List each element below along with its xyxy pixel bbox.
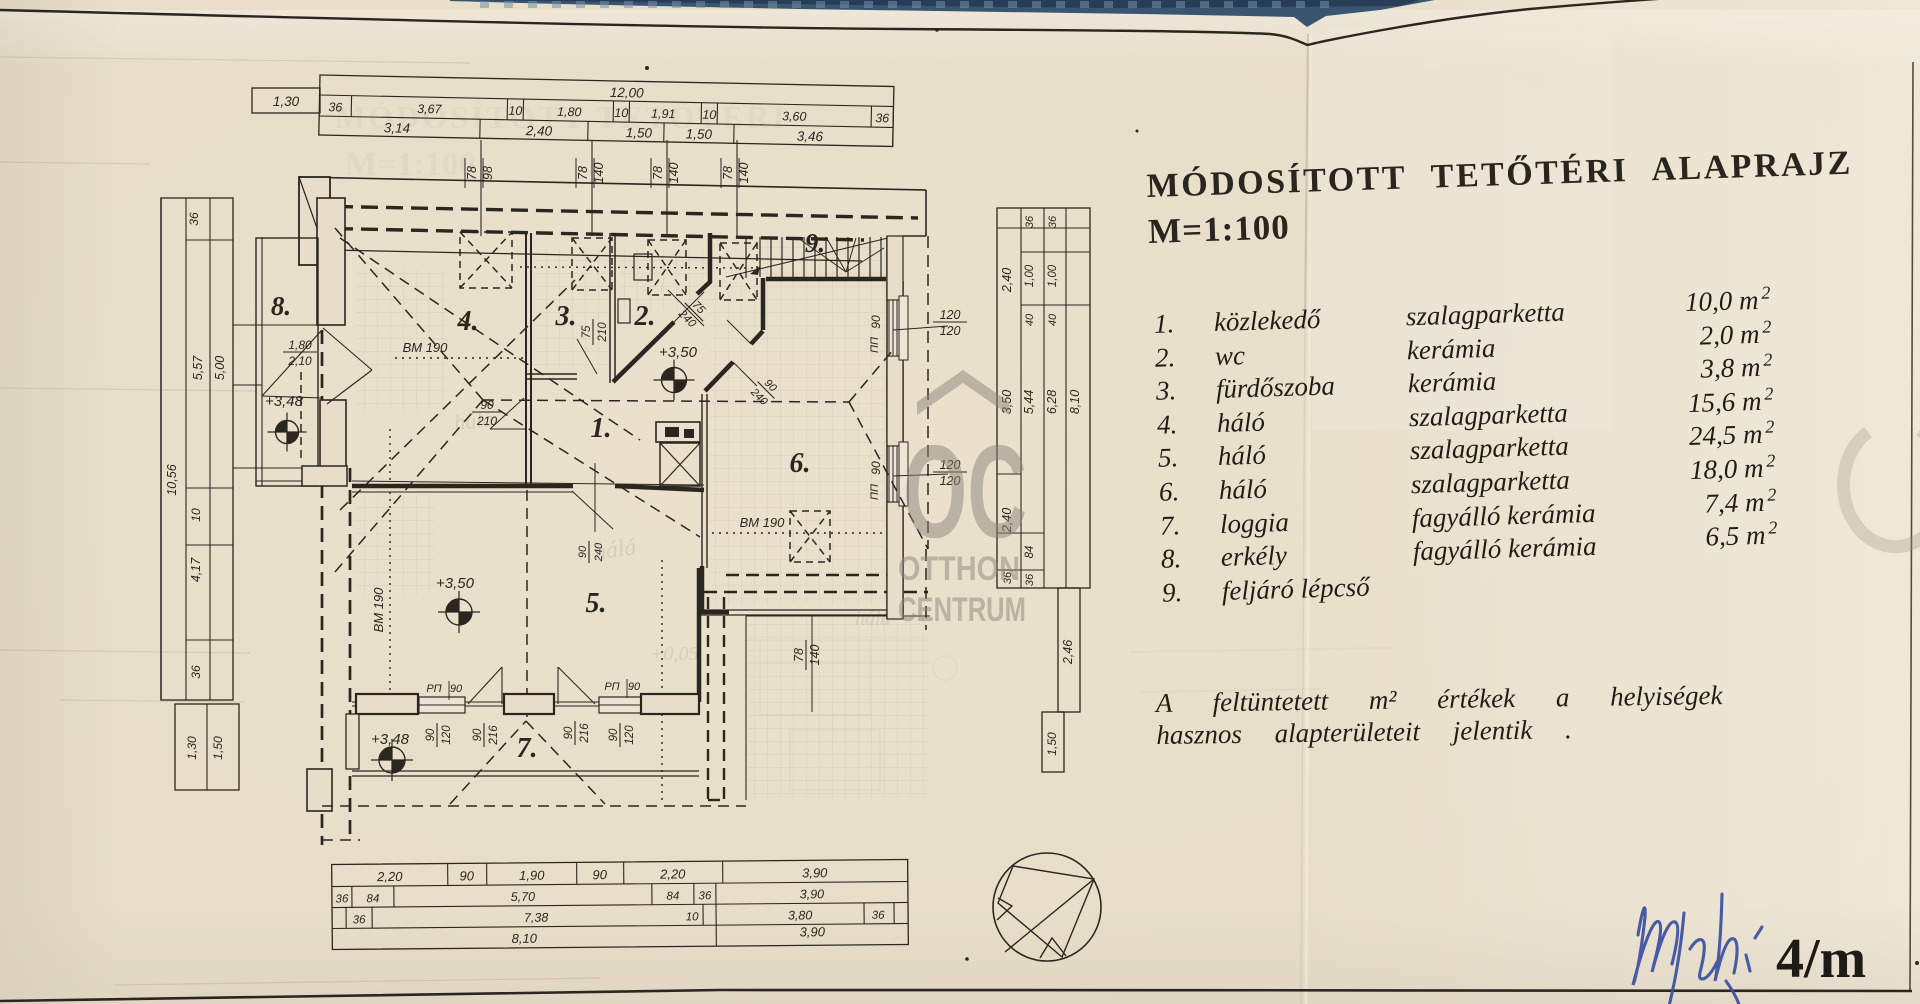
svg-text:2: 2 (1768, 517, 1778, 537)
svg-text:1,80: 1,80 (288, 338, 312, 352)
svg-text:1,50: 1,50 (626, 125, 653, 141)
svg-text:18,0 m: 18,0 m (1690, 453, 1764, 485)
svg-text:OC: OC (903, 418, 1027, 565)
svg-text:szalagparketta: szalagparketta (1409, 431, 1569, 466)
svg-text:8,10: 8,10 (512, 931, 538, 946)
svg-text:+3,48: +3,48 (371, 731, 410, 748)
svg-text:36: 36 (328, 100, 342, 114)
svg-text:3,90: 3,90 (802, 865, 828, 880)
svg-text:5,44: 5,44 (1022, 390, 1036, 414)
svg-text:2,20: 2,20 (659, 866, 686, 881)
svg-text:84: 84 (666, 890, 679, 902)
svg-text:90: 90 (628, 681, 641, 693)
svg-text:8.: 8. (1160, 543, 1181, 574)
svg-text:10,56: 10,56 (165, 464, 179, 495)
svg-text:75: 75 (581, 325, 593, 338)
svg-text:7.: 7. (517, 733, 538, 764)
svg-text:1,00: 1,00 (1047, 264, 1059, 287)
svg-text:2,0 m: 2,0 m (1699, 319, 1760, 351)
svg-text:36: 36 (189, 665, 203, 679)
svg-text:2,20: 2,20 (376, 869, 403, 884)
svg-text:1,90: 1,90 (519, 868, 545, 883)
svg-text:36: 36 (1024, 573, 1036, 586)
svg-text:36: 36 (353, 914, 366, 926)
svg-text:3,80: 3,80 (788, 908, 812, 922)
svg-text:2: 2 (1765, 416, 1775, 436)
svg-text:háló: háló (1218, 474, 1267, 505)
svg-text:5.: 5. (1157, 442, 1178, 473)
svg-text:4/m: 4/m (1776, 928, 1866, 990)
svg-text:ПП: ПП (869, 337, 881, 353)
svg-text:78: 78 (792, 648, 806, 662)
svg-text:90: 90 (450, 683, 463, 695)
svg-text:2,46: 2,46 (1061, 640, 1075, 665)
svg-text:wc: wc (1214, 340, 1245, 371)
svg-text:8.: 8. (271, 291, 291, 321)
svg-text:BM 190: BM 190 (740, 515, 786, 530)
svg-text:40: 40 (1024, 313, 1036, 326)
svg-text:78: 78 (721, 166, 735, 180)
svg-text:90: 90 (577, 545, 589, 558)
svg-text:szalagparketta: szalagparketta (1405, 297, 1565, 332)
svg-text:4.: 4. (457, 306, 479, 337)
svg-text:kerámia: kerámia (1407, 366, 1496, 399)
svg-text:M=1:100: M=1:100 (345, 146, 476, 183)
svg-text:РП: РП (426, 683, 441, 695)
svg-text:78: 78 (465, 166, 479, 180)
svg-text:1.: 1. (1154, 308, 1175, 339)
svg-text:40: 40 (1047, 313, 1059, 326)
svg-text:216: 216 (579, 723, 591, 744)
svg-text:feljáró lépcső: feljáró lépcső (1221, 572, 1371, 606)
svg-text:8,10: 8,10 (1068, 390, 1082, 414)
svg-text:120: 120 (624, 725, 636, 745)
svg-text:CENTRUM: CENTRUM (898, 591, 1026, 629)
svg-text:84: 84 (366, 893, 379, 905)
svg-text:10: 10 (702, 108, 716, 122)
svg-text:+3,50: +3,50 (659, 344, 698, 361)
svg-text:1,80: 1,80 (557, 105, 582, 119)
svg-text:BM 190: BM 190 (403, 340, 449, 355)
svg-text:36: 36 (335, 893, 348, 905)
svg-text:6,5 m: 6,5 m (1705, 520, 1766, 552)
svg-text:90: 90 (563, 726, 575, 739)
svg-text:10,0 m: 10,0 m (1685, 285, 1759, 317)
svg-text:6,28: 6,28 (1045, 390, 1059, 414)
svg-text:10: 10 (508, 104, 522, 118)
svg-text:12,00: 12,00 (610, 85, 645, 101)
svg-text:ПП: ПП (869, 484, 881, 500)
svg-text:3,46: 3,46 (797, 129, 824, 145)
svg-text:1,30: 1,30 (185, 736, 199, 760)
svg-text:hasznos alapterületeit jelenti: hasznos alapterületeit jelentik . (1156, 714, 1572, 750)
svg-text:BM 190: BM 190 (371, 587, 386, 633)
svg-text:3.: 3. (1155, 375, 1177, 406)
svg-text:1,91: 1,91 (651, 107, 676, 121)
svg-text:10: 10 (686, 911, 699, 923)
svg-text:90: 90 (869, 461, 883, 475)
svg-text:90: 90 (592, 867, 607, 882)
svg-text:loggia: loggia (1219, 507, 1289, 539)
svg-text:5,70: 5,70 (511, 890, 535, 904)
svg-text:1,50: 1,50 (686, 126, 713, 142)
svg-text:36: 36 (1024, 215, 1036, 228)
svg-text:210: 210 (597, 322, 609, 343)
svg-text:78: 78 (651, 166, 665, 180)
svg-text:36: 36 (875, 111, 889, 125)
svg-text:7,4 m: 7,4 m (1704, 487, 1765, 519)
svg-text:kerámia: kerámia (1406, 333, 1495, 366)
svg-text:120: 120 (940, 308, 961, 322)
svg-text:120: 120 (441, 725, 453, 745)
svg-text:24,5 m: 24,5 m (1689, 419, 1763, 451)
svg-text:1,00: 1,00 (1024, 264, 1036, 287)
svg-text:2,40: 2,40 (525, 123, 553, 139)
svg-text:2: 2 (1766, 450, 1776, 470)
svg-text:90: 90 (425, 728, 437, 741)
svg-text:M=1:100: M=1:100 (1147, 207, 1290, 251)
svg-text:háló: háló (1216, 407, 1265, 438)
svg-text:közlekedő: közlekedő (1213, 304, 1322, 337)
svg-text:3.: 3. (555, 301, 577, 332)
svg-text:10: 10 (614, 106, 628, 120)
svg-text:15,6 m: 15,6 m (1688, 386, 1762, 418)
svg-text:90: 90 (869, 315, 883, 329)
svg-text:7.: 7. (1160, 510, 1181, 541)
svg-text:4,17: 4,17 (189, 557, 203, 582)
svg-text:36: 36 (698, 890, 712, 902)
svg-text:5,57: 5,57 (191, 355, 205, 380)
svg-text:fagyálló kerámia: fagyálló kerámia (1411, 498, 1596, 533)
svg-text:7,38: 7,38 (524, 911, 548, 925)
svg-text:140: 140 (808, 645, 822, 666)
svg-text:78: 78 (576, 166, 590, 180)
svg-text:90: 90 (608, 728, 620, 741)
svg-text:+0,05: +0,05 (650, 643, 699, 665)
svg-text:РП: РП (604, 681, 619, 693)
svg-text:5,00: 5,00 (213, 356, 227, 380)
svg-text:3,60: 3,60 (782, 109, 807, 123)
svg-text:2.: 2. (1155, 342, 1176, 373)
svg-text:2: 2 (1767, 484, 1777, 504)
svg-text:3,67: 3,67 (417, 102, 443, 117)
svg-text:90: 90 (459, 868, 474, 883)
svg-text:2: 2 (1761, 283, 1771, 303)
svg-text:120: 120 (940, 324, 961, 338)
svg-text:9.: 9. (805, 228, 825, 258)
svg-text:+3,48: +3,48 (265, 393, 304, 410)
svg-text:210: 210 (476, 414, 497, 428)
svg-text:6.: 6. (790, 448, 811, 479)
svg-text:hálá: hálá (855, 608, 891, 630)
svg-text:szalagparketta: szalagparketta (1408, 398, 1568, 433)
svg-text:3,90: 3,90 (800, 924, 826, 939)
svg-text:90: 90 (472, 728, 484, 741)
svg-text:216: 216 (488, 725, 500, 746)
svg-text:2: 2 (1764, 383, 1774, 403)
svg-text:1,30: 1,30 (273, 94, 300, 109)
svg-text:erkély: erkély (1220, 540, 1287, 572)
svg-text:240: 240 (593, 542, 605, 562)
svg-text:5.: 5. (586, 588, 607, 619)
svg-text:36: 36 (872, 910, 885, 922)
svg-text:2,10: 2,10 (287, 354, 312, 368)
svg-text:OTTHON: OTTHON (898, 550, 1020, 588)
svg-text:+3,50: +3,50 (436, 575, 475, 592)
svg-text:2: 2 (1762, 317, 1772, 337)
svg-text:fagyálló kerámia: fagyálló kerámia (1412, 531, 1597, 566)
svg-text:36: 36 (187, 212, 201, 226)
svg-text:3,90: 3,90 (800, 887, 824, 901)
svg-text:3,8 m: 3,8 m (1699, 352, 1761, 384)
svg-text:2,40: 2,40 (1000, 268, 1014, 293)
svg-text:szalagparketta: szalagparketta (1410, 465, 1570, 500)
svg-text:9.: 9. (1161, 577, 1182, 608)
svg-text:6.: 6. (1159, 476, 1180, 507)
svg-text:háló: háló (1217, 440, 1266, 471)
svg-text:1.: 1. (591, 413, 612, 444)
svg-text:10: 10 (189, 508, 203, 522)
svg-text:fürdőszoba: fürdőszoba (1215, 370, 1335, 404)
svg-text:36: 36 (1047, 215, 1059, 228)
svg-text:4.: 4. (1157, 409, 1178, 440)
svg-text:1,50: 1,50 (1045, 732, 1059, 756)
svg-text:2: 2 (1763, 349, 1773, 369)
svg-text:3,14: 3,14 (384, 120, 411, 136)
svg-text:2.: 2. (634, 301, 656, 332)
svg-text:1,50: 1,50 (211, 736, 225, 760)
